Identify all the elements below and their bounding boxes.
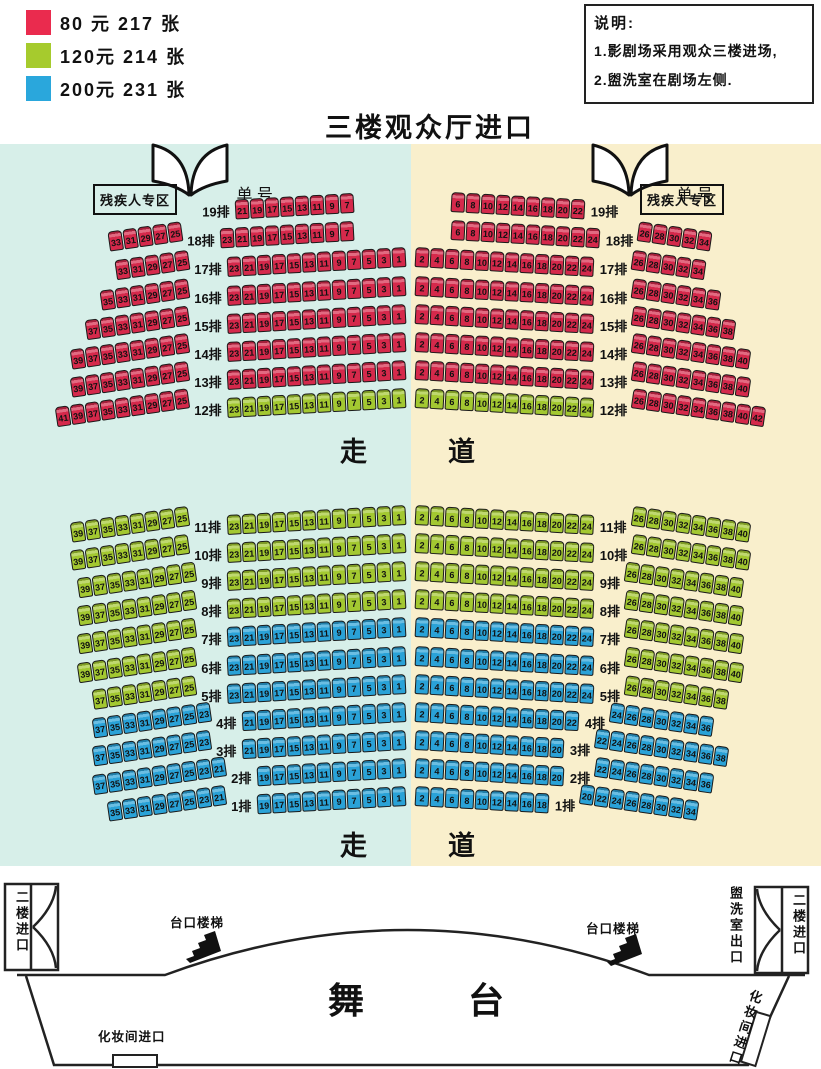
seat[interactable]: 31: [136, 596, 153, 618]
seat[interactable]: 18: [534, 512, 549, 533]
seat[interactable]: 25: [173, 333, 190, 355]
seat[interactable]: 27: [165, 564, 182, 586]
seat[interactable]: 4: [430, 248, 445, 269]
seat[interactable]: 27: [158, 308, 175, 330]
seat[interactable]: 8: [459, 789, 474, 810]
seat[interactable]: 7: [346, 761, 361, 782]
seat[interactable]: 16: [519, 310, 534, 331]
seat[interactable]: 13: [301, 622, 316, 643]
seat[interactable]: 12: [489, 308, 504, 329]
seat[interactable]: 16: [519, 338, 534, 359]
seat[interactable]: 9: [331, 564, 346, 585]
seat[interactable]: 18: [540, 225, 555, 246]
seat[interactable]: 12: [489, 650, 504, 671]
seat[interactable]: 27: [166, 706, 183, 728]
seat[interactable]: 6: [445, 732, 460, 753]
seat[interactable]: 12: [489, 537, 504, 558]
seat[interactable]: 24: [579, 256, 594, 277]
seat[interactable]: 17: [272, 283, 287, 304]
seat[interactable]: 9: [331, 592, 346, 613]
seat[interactable]: 16: [519, 652, 534, 673]
seat[interactable]: 27: [158, 363, 175, 385]
seat[interactable]: 25: [180, 590, 197, 612]
seat[interactable]: 4: [430, 759, 445, 780]
seat[interactable]: 1: [391, 247, 406, 268]
seat[interactable]: 8: [459, 279, 474, 300]
seat[interactable]: 7: [346, 250, 361, 271]
seat[interactable]: 17: [272, 709, 287, 730]
seat[interactable]: 27: [166, 791, 183, 813]
seat[interactable]: 15: [287, 282, 302, 303]
seat[interactable]: 20: [549, 541, 564, 562]
seat[interactable]: 29: [137, 226, 154, 248]
seat[interactable]: 11: [316, 251, 331, 272]
seat[interactable]: 8: [459, 391, 474, 412]
seat[interactable]: 2: [415, 646, 430, 667]
seat[interactable]: 7: [346, 279, 361, 300]
seat[interactable]: 15: [280, 224, 295, 245]
seat[interactable]: 1: [391, 758, 406, 779]
seat[interactable]: 30: [660, 510, 677, 532]
seat[interactable]: 16: [519, 595, 534, 616]
seat[interactable]: 19: [257, 368, 272, 389]
seat[interactable]: 19: [257, 284, 272, 305]
seat[interactable]: 19: [250, 226, 265, 247]
seat[interactable]: 13: [301, 365, 316, 386]
seat[interactable]: 29: [151, 594, 168, 616]
seat[interactable]: 23: [195, 702, 212, 724]
seat[interactable]: 2: [415, 617, 430, 638]
seat[interactable]: 9: [331, 677, 346, 698]
seat[interactable]: 19: [257, 312, 272, 333]
seat[interactable]: 14: [510, 223, 525, 244]
seat[interactable]: 8: [459, 307, 474, 328]
seat[interactable]: 6: [445, 676, 460, 697]
seat[interactable]: 1: [391, 786, 406, 807]
seat[interactable]: 9: [331, 705, 346, 726]
seat[interactable]: 19: [257, 682, 272, 703]
seat[interactable]: 19: [250, 198, 265, 219]
seat[interactable]: 3: [376, 675, 391, 696]
seat[interactable]: 8: [459, 733, 474, 754]
seat[interactable]: 3: [376, 333, 391, 354]
seat[interactable]: 17: [272, 681, 287, 702]
seat[interactable]: 29: [151, 651, 168, 673]
seat[interactable]: 2: [415, 533, 430, 554]
seat[interactable]: 25: [180, 760, 197, 782]
seat[interactable]: 7: [346, 677, 361, 698]
seat[interactable]: 11: [316, 621, 331, 642]
seat[interactable]: 8: [459, 592, 474, 613]
seat[interactable]: 2: [415, 388, 430, 409]
seat[interactable]: 11: [316, 678, 331, 699]
seat[interactable]: 10: [474, 508, 489, 529]
seat[interactable]: 2: [415, 276, 430, 297]
seat[interactable]: 1: [391, 702, 406, 723]
seat[interactable]: 29: [151, 793, 168, 815]
seat[interactable]: 17: [272, 737, 287, 758]
seat[interactable]: 2: [415, 730, 430, 751]
seat[interactable]: 17: [272, 512, 287, 533]
seat[interactable]: 20: [549, 368, 564, 389]
seat[interactable]: 15: [287, 595, 302, 616]
seat[interactable]: 27: [166, 734, 183, 756]
seat[interactable]: 3: [376, 248, 391, 269]
seat[interactable]: 6: [445, 334, 460, 355]
seat[interactable]: 21: [242, 255, 257, 276]
seat[interactable]: 27: [158, 252, 175, 274]
seat[interactable]: 24: [579, 626, 594, 647]
seat[interactable]: 20: [549, 312, 564, 333]
seat[interactable]: 4: [430, 333, 445, 354]
seat[interactable]: 20: [549, 625, 564, 646]
seat[interactable]: 18: [534, 653, 549, 674]
seat[interactable]: 7: [346, 705, 361, 726]
seat[interactable]: 14: [504, 707, 519, 728]
seat[interactable]: 17: [272, 568, 287, 589]
seat[interactable]: 32: [675, 512, 692, 534]
seat[interactable]: 5: [361, 362, 376, 383]
seat[interactable]: 10: [474, 335, 489, 356]
seat[interactable]: 18: [540, 197, 555, 218]
seat[interactable]: 20: [549, 738, 564, 759]
seat[interactable]: 11: [316, 734, 331, 755]
seat[interactable]: 23: [195, 758, 212, 780]
seat[interactable]: 14: [504, 679, 519, 700]
seat[interactable]: 2: [415, 758, 430, 779]
seat[interactable]: 4: [430, 534, 445, 555]
seat[interactable]: 15: [287, 539, 302, 560]
seat[interactable]: 5: [361, 591, 376, 612]
seat[interactable]: 4: [430, 787, 445, 808]
seat[interactable]: 3: [376, 562, 391, 583]
seat[interactable]: 13: [294, 223, 309, 244]
seat[interactable]: 18: [534, 540, 549, 561]
seat[interactable]: 14: [504, 791, 519, 812]
seat[interactable]: 25: [173, 250, 190, 272]
seat[interactable]: 14: [504, 566, 519, 587]
seat[interactable]: 6: [451, 220, 466, 241]
seat[interactable]: 7: [346, 592, 361, 613]
seat[interactable]: 8: [459, 761, 474, 782]
seat[interactable]: 18: [534, 681, 549, 702]
seat[interactable]: 7: [339, 221, 354, 242]
seat[interactable]: 16: [519, 511, 534, 532]
seat[interactable]: 8: [459, 564, 474, 585]
seat[interactable]: 14: [504, 594, 519, 615]
seat[interactable]: 29: [144, 254, 161, 276]
seat[interactable]: 13: [301, 281, 316, 302]
seat[interactable]: 8: [459, 536, 474, 557]
seat[interactable]: 25: [166, 221, 183, 243]
seat[interactable]: 1: [391, 617, 406, 638]
seat[interactable]: 25: [180, 704, 197, 726]
seat[interactable]: 1: [391, 646, 406, 667]
seat[interactable]: 13: [301, 651, 316, 672]
seat[interactable]: 17: [265, 225, 280, 246]
seat[interactable]: 12: [489, 251, 504, 272]
seat[interactable]: 13: [301, 707, 316, 728]
seat[interactable]: 29: [143, 337, 160, 359]
seat[interactable]: 31: [129, 367, 146, 389]
seat[interactable]: 16: [519, 792, 534, 813]
seat[interactable]: 16: [519, 680, 534, 701]
seat[interactable]: 27: [165, 620, 182, 642]
seat[interactable]: 20: [549, 682, 564, 703]
seat[interactable]: 3: [376, 277, 391, 298]
seat[interactable]: 12: [489, 593, 504, 614]
seat[interactable]: 13: [301, 566, 316, 587]
seat[interactable]: 12: [489, 565, 504, 586]
seat[interactable]: 25: [173, 388, 190, 410]
seat[interactable]: 17: [265, 197, 280, 218]
seat[interactable]: 18: [534, 367, 549, 388]
seat[interactable]: 1: [391, 388, 406, 409]
seat[interactable]: 6: [445, 591, 460, 612]
seat[interactable]: 11: [309, 223, 324, 244]
seat[interactable]: 19: [257, 794, 272, 815]
seat[interactable]: 10: [474, 620, 489, 641]
seat[interactable]: 29: [143, 365, 160, 387]
seat[interactable]: 16: [525, 224, 540, 245]
seat[interactable]: 17: [272, 540, 287, 561]
seat[interactable]: 33: [114, 397, 131, 419]
seat[interactable]: 8: [465, 193, 480, 214]
seat[interactable]: 3: [376, 787, 391, 808]
seat[interactable]: 11: [316, 308, 331, 329]
seat[interactable]: 10: [474, 564, 489, 585]
seat[interactable]: 31: [129, 540, 146, 562]
seat[interactable]: 17: [272, 339, 287, 360]
seat[interactable]: 25: [180, 647, 197, 669]
seat[interactable]: 18: [534, 793, 549, 814]
seat[interactable]: 29: [144, 282, 161, 304]
seat[interactable]: 17: [272, 367, 287, 388]
seat[interactable]: 2: [415, 304, 430, 325]
seat[interactable]: 11: [316, 280, 331, 301]
seat[interactable]: 29: [143, 310, 160, 332]
seat[interactable]: 17: [272, 395, 287, 416]
seat[interactable]: 6: [445, 535, 460, 556]
seat[interactable]: 14: [510, 195, 525, 216]
seat[interactable]: 13: [301, 679, 316, 700]
seat[interactable]: 12: [495, 195, 510, 216]
seat[interactable]: 27: [165, 592, 182, 614]
seat[interactable]: 22: [564, 625, 579, 646]
seat[interactable]: 15: [287, 708, 302, 729]
seat[interactable]: 6: [445, 278, 460, 299]
seat[interactable]: 15: [287, 338, 302, 359]
seat[interactable]: 29: [151, 622, 168, 644]
seat[interactable]: 15: [287, 511, 302, 532]
seat[interactable]: 12: [495, 223, 510, 244]
seat[interactable]: 29: [151, 679, 168, 701]
seat[interactable]: 13: [301, 791, 316, 812]
seat[interactable]: 11: [316, 593, 331, 614]
seat[interactable]: 11: [316, 790, 331, 811]
seat[interactable]: 14: [504, 538, 519, 559]
seat[interactable]: 12: [489, 280, 504, 301]
seat[interactable]: 1: [391, 304, 406, 325]
seat[interactable]: 14: [504, 393, 519, 414]
seat[interactable]: 17: [272, 624, 287, 645]
seat[interactable]: 6: [445, 619, 460, 640]
seat[interactable]: 9: [324, 194, 339, 215]
seat[interactable]: 19: [257, 625, 272, 646]
seat[interactable]: 13: [301, 309, 316, 330]
seat[interactable]: 10: [474, 250, 489, 271]
seat[interactable]: 8: [465, 221, 480, 242]
seat[interactable]: 9: [331, 363, 346, 384]
seat[interactable]: 9: [331, 279, 346, 300]
seat[interactable]: 10: [480, 194, 495, 215]
seat[interactable]: 31: [136, 568, 153, 590]
seat[interactable]: 8: [459, 677, 474, 698]
seat[interactable]: 19: [257, 541, 272, 562]
seat[interactable]: 9: [331, 761, 346, 782]
seat[interactable]: 19: [257, 396, 272, 417]
seat[interactable]: 12: [489, 392, 504, 413]
seat[interactable]: 25: [180, 562, 197, 584]
seat[interactable]: 28: [645, 508, 662, 530]
seat[interactable]: 20: [549, 396, 564, 417]
seat[interactable]: 25: [173, 534, 190, 556]
seat[interactable]: 25: [181, 789, 198, 811]
seat[interactable]: 10: [474, 649, 489, 670]
seat[interactable]: 23: [227, 397, 242, 418]
seat[interactable]: 5: [361, 507, 376, 528]
seat[interactable]: 20: [549, 513, 564, 534]
seat[interactable]: 5: [361, 563, 376, 584]
seat[interactable]: 12: [489, 762, 504, 783]
seat[interactable]: 11: [316, 537, 331, 558]
seat[interactable]: 10: [474, 536, 489, 557]
seat[interactable]: 18: [534, 339, 549, 360]
seat[interactable]: 25: [174, 506, 191, 528]
seat[interactable]: 31: [129, 339, 146, 361]
seat[interactable]: 5: [361, 648, 376, 669]
seat[interactable]: 5: [361, 619, 376, 640]
seat[interactable]: 21: [242, 625, 257, 646]
seat[interactable]: 11: [316, 650, 331, 671]
seat[interactable]: 20: [555, 198, 570, 219]
seat[interactable]: 18: [534, 709, 549, 730]
seat[interactable]: 8: [459, 620, 474, 641]
seat[interactable]: 31: [128, 395, 145, 417]
seat[interactable]: 9: [331, 536, 346, 557]
seat[interactable]: 19: [257, 710, 272, 731]
seat[interactable]: 12: [489, 678, 504, 699]
seat[interactable]: 6: [445, 306, 460, 327]
seat[interactable]: 5: [361, 760, 376, 781]
seat[interactable]: 15: [287, 792, 302, 813]
seat[interactable]: 16: [519, 736, 534, 757]
seat[interactable]: 1: [391, 730, 406, 751]
seat[interactable]: 39: [69, 403, 86, 425]
seat[interactable]: 23: [195, 730, 212, 752]
seat[interactable]: 12: [489, 509, 504, 530]
seat[interactable]: 21: [210, 785, 227, 807]
seat[interactable]: 31: [136, 796, 153, 818]
seat[interactable]: 23: [227, 256, 242, 277]
seat[interactable]: 8: [459, 649, 474, 670]
seat[interactable]: 5: [361, 732, 376, 753]
seat[interactable]: 11: [316, 706, 331, 727]
seat[interactable]: 33: [121, 798, 138, 820]
seat[interactable]: 9: [324, 222, 339, 243]
seat[interactable]: 29: [151, 708, 168, 730]
seat[interactable]: 10: [474, 789, 489, 810]
seat[interactable]: 6: [445, 704, 460, 725]
seat[interactable]: 18: [534, 624, 549, 645]
seat[interactable]: 5: [361, 535, 376, 556]
seat[interactable]: 7: [346, 564, 361, 585]
seat[interactable]: 6: [445, 507, 460, 528]
seat[interactable]: 7: [346, 620, 361, 641]
seat[interactable]: 2: [415, 332, 430, 353]
seat[interactable]: 5: [361, 278, 376, 299]
seat[interactable]: 15: [287, 366, 302, 387]
seat[interactable]: 15: [280, 196, 295, 217]
seat[interactable]: 12: [489, 364, 504, 385]
seat[interactable]: 17: [272, 793, 287, 814]
seat[interactable]: 10: [474, 307, 489, 328]
seat[interactable]: 3: [376, 731, 391, 752]
seat[interactable]: 15: [287, 652, 302, 673]
seat[interactable]: 9: [331, 620, 346, 641]
seat[interactable]: 6: [445, 760, 460, 781]
seat[interactable]: 25: [173, 306, 190, 328]
seat[interactable]: 12: [489, 734, 504, 755]
seat[interactable]: 9: [331, 335, 346, 356]
seat[interactable]: 18: [534, 568, 549, 589]
seat[interactable]: 6: [445, 362, 460, 383]
seat[interactable]: 20: [549, 284, 564, 305]
seat[interactable]: 21: [242, 396, 257, 417]
seat[interactable]: 18: [534, 311, 549, 332]
seat[interactable]: 1: [391, 360, 406, 381]
seat[interactable]: 25: [173, 278, 190, 300]
seat[interactable]: 18: [534, 395, 549, 416]
seat[interactable]: 27: [166, 763, 183, 785]
seat[interactable]: 16: [519, 764, 534, 785]
seat[interactable]: 6: [445, 249, 460, 270]
seat[interactable]: 11: [316, 565, 331, 586]
seat[interactable]: 10: [474, 279, 489, 300]
seat[interactable]: 14: [504, 309, 519, 330]
seat[interactable]: 19: [257, 766, 272, 787]
seat[interactable]: 27: [165, 649, 182, 671]
seat[interactable]: 8: [459, 363, 474, 384]
seat[interactable]: 16: [519, 623, 534, 644]
seat[interactable]: 9: [331, 307, 346, 328]
seat[interactable]: 11: [309, 195, 324, 216]
seat[interactable]: 17: [272, 311, 287, 332]
seat[interactable]: 27: [158, 390, 175, 412]
seat[interactable]: 13: [301, 393, 316, 414]
seat[interactable]: 6: [445, 648, 460, 669]
seat[interactable]: 12: [489, 790, 504, 811]
seat[interactable]: 4: [430, 590, 445, 611]
seat[interactable]: 11: [316, 364, 331, 385]
seat[interactable]: 27: [158, 335, 175, 357]
seat[interactable]: 31: [136, 653, 153, 675]
seat[interactable]: 18: [534, 765, 549, 786]
seat[interactable]: 14: [504, 337, 519, 358]
seat[interactable]: 11: [316, 509, 331, 530]
seat[interactable]: 11: [316, 762, 331, 783]
seat[interactable]: 13: [301, 337, 316, 358]
